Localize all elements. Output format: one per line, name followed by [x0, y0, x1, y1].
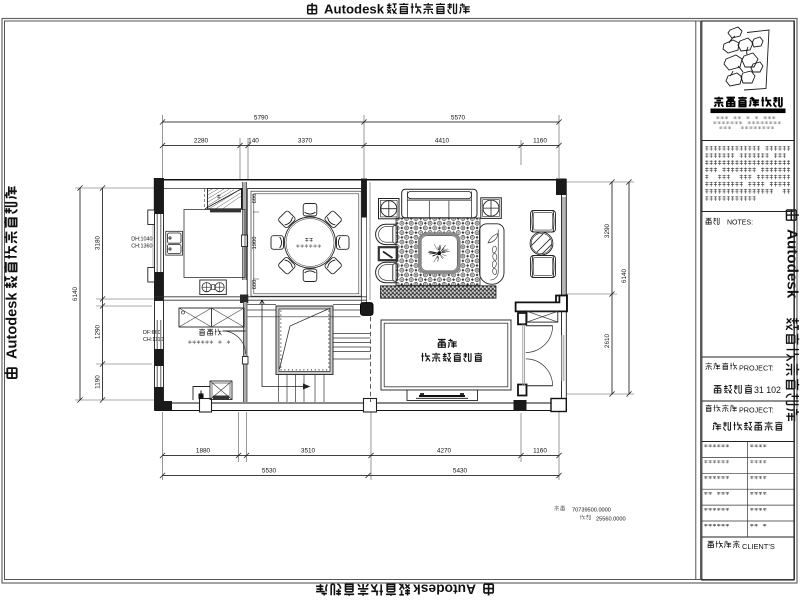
svg-text:Autodesk: Autodesk: [784, 229, 800, 299]
svg-text:DH:1040: DH:1040: [131, 237, 152, 243]
svg-text:3510: 3510: [301, 448, 316, 455]
svg-text:680: 680: [252, 280, 258, 290]
svg-text:5430: 5430: [453, 468, 468, 475]
svg-text:3180: 3180: [95, 235, 102, 250]
svg-text:1900: 1900: [252, 237, 258, 250]
svg-text:6140: 6140: [72, 286, 79, 301]
svg-text:5790: 5790: [254, 115, 269, 122]
svg-text:70739500.0000: 70739500.0000: [572, 508, 611, 514]
svg-text:5530: 5530: [262, 468, 277, 475]
svg-text:5570: 5570: [451, 115, 466, 122]
svg-text:2280: 2280: [194, 138, 209, 145]
svg-text:1290: 1290: [95, 324, 102, 339]
svg-text:3290: 3290: [604, 223, 611, 238]
svg-text:CLIENT’S: CLIENT’S: [742, 542, 775, 551]
svg-text:Autodesk: Autodesk: [324, 2, 385, 17]
svg-text:1190: 1190: [95, 375, 102, 389]
svg-text:CH:1360: CH:1360: [131, 244, 152, 250]
svg-text:1880: 1880: [196, 448, 211, 455]
svg-text:25560.0000: 25560.0000: [596, 517, 626, 523]
svg-text:4270: 4270: [437, 448, 452, 455]
svg-text:600: 600: [252, 194, 258, 204]
svg-text:140: 140: [248, 138, 259, 145]
svg-text:2610: 2610: [604, 333, 611, 348]
svg-text:Autodesk: Autodesk: [4, 292, 20, 359]
svg-text:Autodesk: Autodesk: [413, 581, 476, 596]
svg-text:1160: 1160: [533, 138, 547, 145]
svg-text:1160: 1160: [533, 448, 547, 455]
svg-text:3370: 3370: [298, 138, 313, 145]
svg-text:4410: 4410: [435, 138, 450, 145]
svg-text:PROJECT:: PROJECT:: [739, 406, 774, 415]
svg-text:6140: 6140: [621, 268, 628, 283]
svg-text:31 102: 31 102: [754, 385, 781, 395]
svg-text:NOTES:: NOTES:: [727, 220, 753, 227]
svg-text:PROJECT:: PROJECT:: [739, 364, 774, 373]
svg-text:DF:660: DF:660: [143, 330, 161, 336]
